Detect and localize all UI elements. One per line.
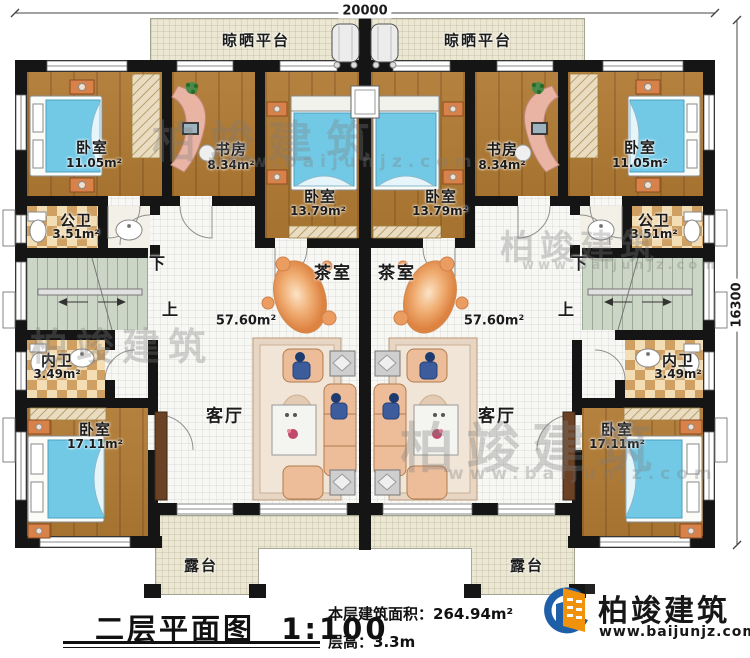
stair-up-right: 上 [558, 296, 574, 320]
room-area-public-bath-left: 3.51m² [52, 227, 99, 241]
floor-area-value: 264.94m² [433, 605, 513, 623]
floor-height-row: 层高：3.3m [328, 631, 415, 652]
living-set-left [253, 338, 356, 500]
room-label-tea-right: 茶室 [378, 259, 416, 284]
dimension-right: 16300 [730, 278, 745, 331]
room-area-bedroom-mid-left: 13.79m² [290, 204, 346, 218]
hall-area-left: 57.60m² [216, 314, 276, 329]
living-set-right [374, 338, 477, 500]
room-label-terrace-right: 露台 [510, 555, 544, 576]
room-area-bedroom-mid-right: 13.79m² [412, 204, 468, 218]
room-label-terrace-left: 露台 [184, 555, 218, 576]
room-area-private-bath-left: 3.49m² [33, 367, 80, 381]
room-label-study-left: 书房 [215, 139, 247, 160]
bed-mid-left [267, 96, 357, 190]
room-area-study-right: 8.34m² [478, 158, 525, 172]
room-area-study-left: 8.34m² [207, 158, 254, 172]
room-area-bedroom-bottom-right: 17.11m² [589, 437, 645, 451]
room-area-bedroom-top-right: 11.05m² [612, 156, 668, 170]
floor-plan-drawing [0, 0, 750, 658]
room-area-private-bath-right: 3.49m² [654, 367, 701, 381]
stair-down-left: 下 [149, 250, 165, 274]
bed-mid-right [373, 96, 463, 190]
stair-down-right: 下 [571, 250, 587, 274]
title-underline-thin [63, 647, 320, 648]
room-label-bedroom-top-left: 卧室 [76, 137, 108, 158]
stair-up-left: 上 [162, 296, 178, 320]
room-label-platform-right: 晾晒平台 [444, 30, 512, 51]
room-area-bedroom-bottom-left: 17.11m² [67, 437, 123, 451]
floor-height-label: 层高： [328, 633, 373, 651]
dimension-top: 20000 [338, 4, 391, 19]
room-label-tea-left: 茶室 [314, 259, 352, 284]
floor-area-label: 本层建筑面积： [328, 605, 433, 623]
room-label-bedroom-top-right: 卧室 [624, 137, 656, 158]
floor-height-value: 3.3m [373, 633, 415, 651]
room-label-platform-left: 晾晒平台 [222, 30, 290, 51]
floor-plan-page: 20000 16300 晾晒平台 晾晒平台 卧室 11.05m² 书房 8.34… [0, 0, 750, 658]
room-label-living-left: 客厅 [206, 402, 244, 427]
logo-site-text: www.baijunjz.com [599, 624, 750, 640]
baijun-logo-icon [543, 582, 595, 644]
room-area-public-bath-right: 3.51m² [630, 227, 677, 241]
room-label-living-right: 客厅 [478, 402, 516, 427]
room-area-bedroom-top-left: 11.05m² [66, 156, 122, 170]
floor-area-row: 本层建筑面积：264.94m² [328, 603, 513, 624]
hall-area-right: 57.60m² [464, 314, 524, 329]
title-underline-thick [63, 641, 320, 644]
room-label-study-right: 书房 [486, 139, 518, 160]
